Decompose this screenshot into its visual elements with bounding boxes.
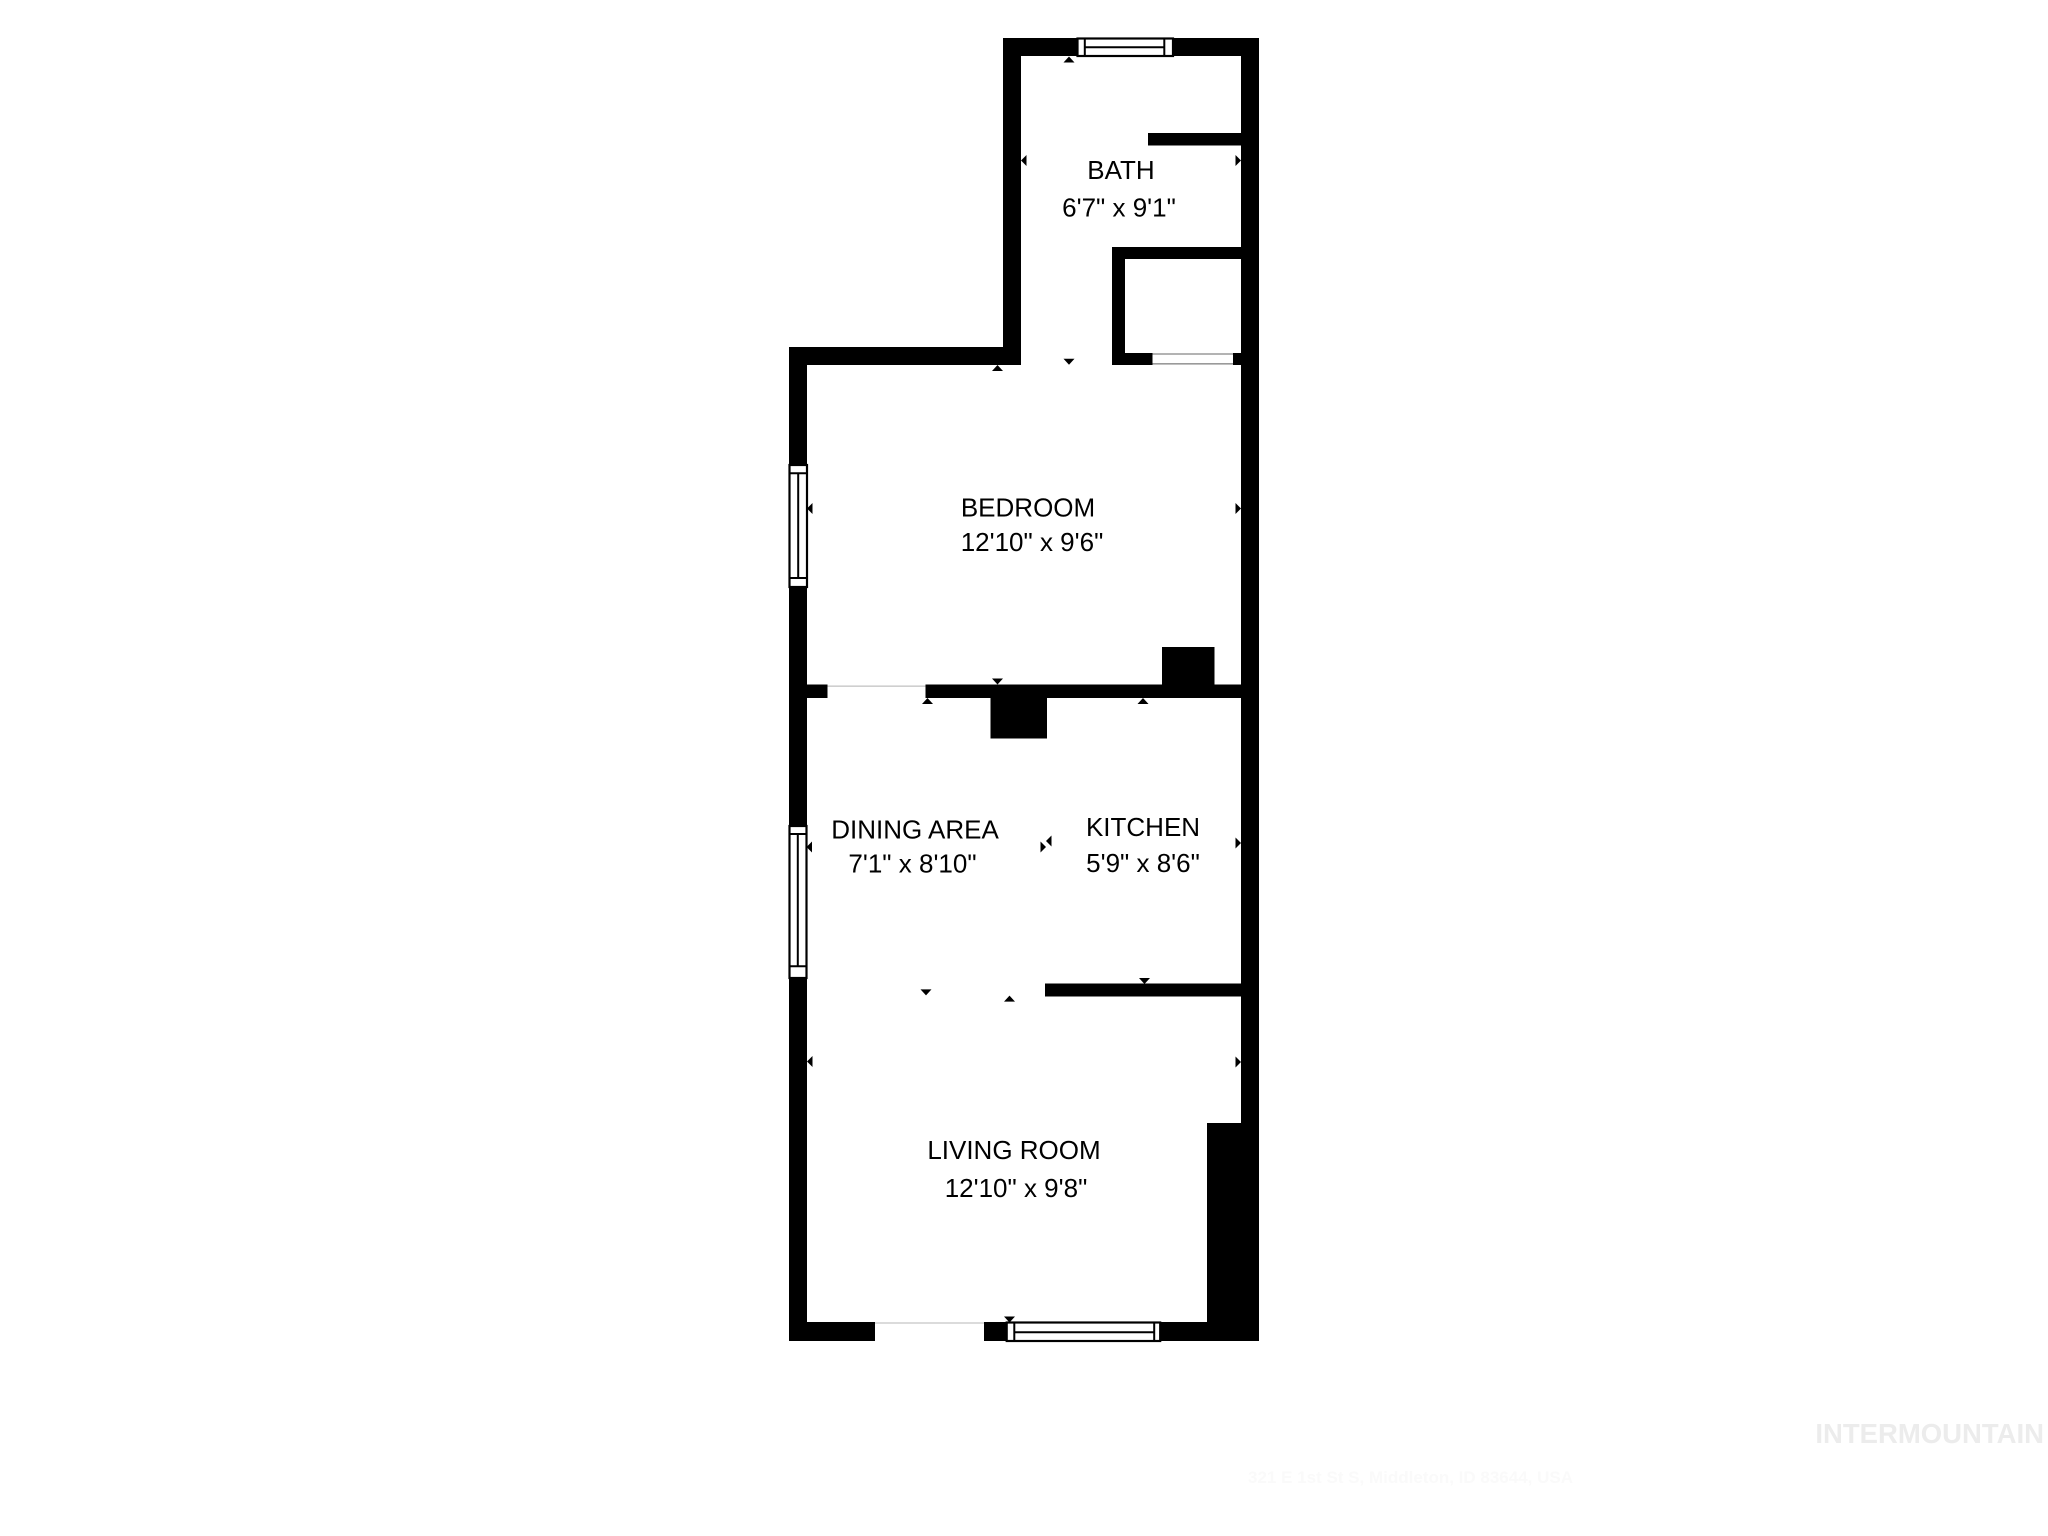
svg-text:12'10" x 9'8": 12'10" x 9'8"	[945, 1173, 1088, 1203]
svg-text:7'1" x 8'10": 7'1" x 8'10"	[848, 849, 976, 879]
svg-text:BATH: BATH	[1087, 155, 1154, 185]
svg-text:321 E 1st St S, Middleton, ID: 321 E 1st St S, Middleton, ID 83644, USA	[1248, 1468, 1573, 1487]
svg-text:BEDROOM: BEDROOM	[961, 493, 1095, 523]
svg-text:12'10" x 9'6": 12'10" x 9'6"	[961, 527, 1104, 557]
svg-text:KITCHEN: KITCHEN	[1086, 812, 1200, 842]
svg-text:DINING AREA: DINING AREA	[831, 815, 999, 845]
svg-text:5'9" x 8'6": 5'9" x 8'6"	[1086, 848, 1200, 878]
svg-text:6'7" x 9'1": 6'7" x 9'1"	[1062, 193, 1176, 223]
svg-text:LIVING ROOM: LIVING ROOM	[927, 1135, 1100, 1165]
svg-text:INTERMOUNTAIN: INTERMOUNTAIN	[1815, 1418, 2044, 1449]
